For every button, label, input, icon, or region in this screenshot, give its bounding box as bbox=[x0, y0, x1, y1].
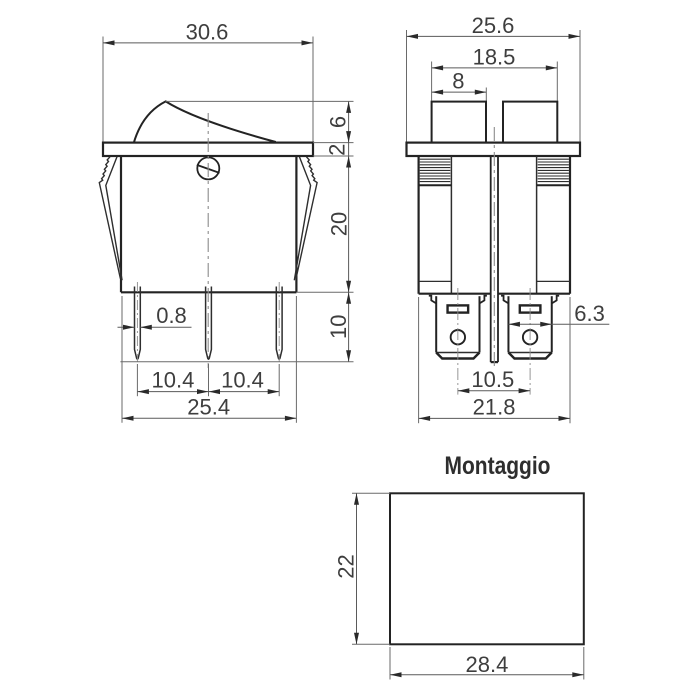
svg-text:6: 6 bbox=[326, 116, 351, 128]
svg-text:10.4: 10.4 bbox=[221, 368, 264, 393]
svg-text:0.8: 0.8 bbox=[156, 303, 187, 328]
svg-text:22: 22 bbox=[333, 554, 358, 578]
svg-text:28.4: 28.4 bbox=[465, 652, 508, 677]
svg-text:Montaggio: Montaggio bbox=[445, 452, 551, 480]
svg-text:18.5: 18.5 bbox=[473, 44, 516, 69]
svg-text:25.4: 25.4 bbox=[187, 394, 230, 419]
svg-text:2: 2 bbox=[324, 144, 349, 156]
svg-text:6.3: 6.3 bbox=[574, 301, 605, 326]
svg-text:20: 20 bbox=[326, 212, 351, 236]
svg-text:21.8: 21.8 bbox=[473, 394, 516, 419]
svg-text:25.6: 25.6 bbox=[472, 13, 515, 38]
svg-text:30.6: 30.6 bbox=[186, 20, 229, 45]
svg-text:10.5: 10.5 bbox=[471, 367, 514, 392]
svg-text:8: 8 bbox=[452, 69, 464, 94]
svg-text:10.4: 10.4 bbox=[151, 368, 194, 393]
svg-text:10: 10 bbox=[326, 315, 351, 339]
